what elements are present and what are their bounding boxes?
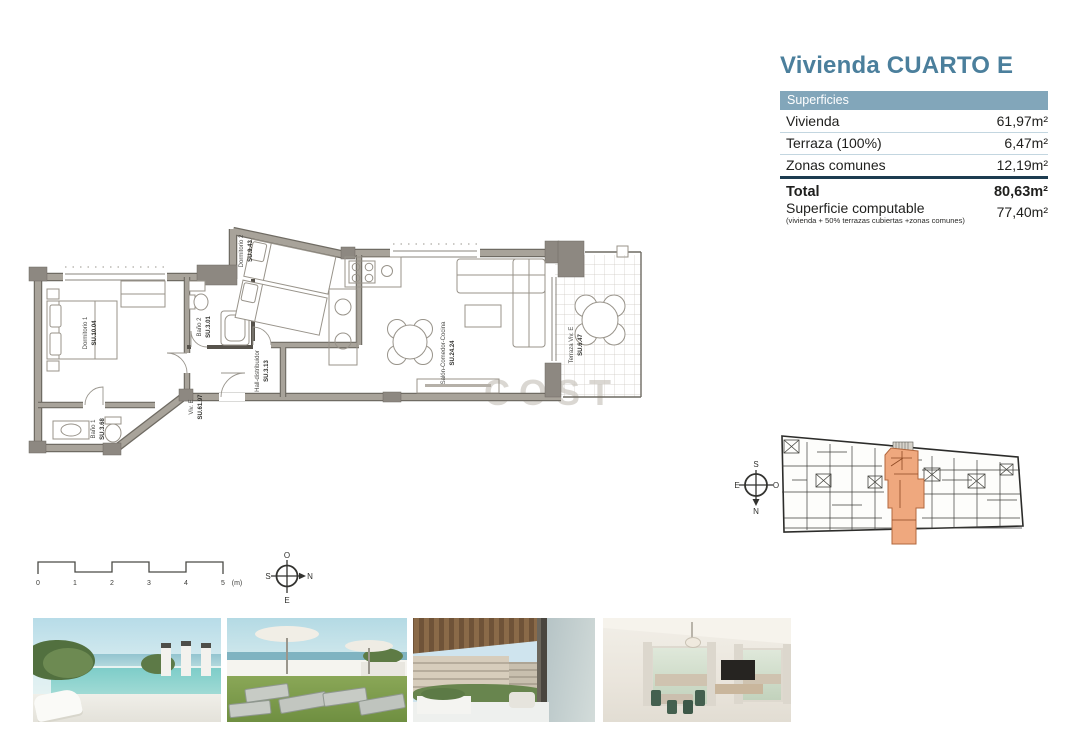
row-value: 80,63m² <box>994 184 1048 200</box>
svg-text:5: 5 <box>221 580 225 587</box>
photo-rooftop-pool <box>33 618 221 722</box>
table-divider <box>780 176 1048 179</box>
chair <box>509 692 535 708</box>
svg-text:3: 3 <box>147 580 151 587</box>
svg-text:N: N <box>307 572 313 581</box>
sideboard <box>715 684 763 694</box>
plants <box>421 688 465 700</box>
row-value: 6,47m² <box>1004 135 1048 151</box>
svg-text:N: N <box>753 507 759 516</box>
svg-text:SU.3.68: SU.3.68 <box>100 418 106 440</box>
glass-door <box>541 618 595 722</box>
svg-text:Terraza Viv. E: Terraza Viv. E <box>569 327 575 364</box>
svg-text:S: S <box>753 460 758 469</box>
photo-solarium-loungers <box>227 618 407 722</box>
window-view-buildings <box>655 674 707 686</box>
svg-text:SU.6.47: SU.6.47 <box>578 334 584 356</box>
room-label-bano-1: Baño 1 SU.3.68 <box>91 418 106 440</box>
svg-text:SU.3.01: SU.3.01 <box>206 316 212 338</box>
svg-text:E: E <box>284 596 289 605</box>
umbrella-pole <box>286 638 288 674</box>
chair <box>651 690 661 706</box>
pillar <box>181 646 191 676</box>
row-value: 12,19m² <box>997 157 1048 173</box>
table-row-vivienda: Vivienda 61,97m² <box>780 110 1048 133</box>
svg-text:Viv. E: Viv. E <box>189 399 195 414</box>
row-label: Zonas comunes <box>780 157 886 173</box>
key-plan-compass-icon: S E O N <box>733 458 779 516</box>
dining-set <box>388 320 433 365</box>
svg-text:S: S <box>265 572 270 581</box>
svg-text:(m): (m) <box>232 580 243 587</box>
svg-text:Dormitorio 1: Dormitorio 1 <box>83 316 89 349</box>
svg-text:4: 4 <box>184 580 188 587</box>
svg-text:2: 2 <box>110 580 114 587</box>
photo-living-room <box>603 618 791 722</box>
svg-text:Salón-Comedor-Cocina: Salón-Comedor-Cocina <box>441 321 447 384</box>
chair <box>695 690 705 706</box>
pendant-lamp <box>685 637 701 648</box>
svg-text:E: E <box>734 481 739 490</box>
svg-text:0: 0 <box>36 580 40 587</box>
row-label: Vivienda <box>780 113 839 129</box>
pendant-cord <box>691 622 693 638</box>
table-row-computable: Superficie computable (vivienda + 50% te… <box>780 201 1048 231</box>
floor-plan: Dormitorio 1 SU.10.04 Baño 1 SU.3.68 Bañ… <box>25 195 665 495</box>
svg-text:SU.24.24: SU.24.24 <box>450 340 456 366</box>
tv <box>721 660 755 680</box>
svg-text:SU.10.04: SU.10.04 <box>92 320 98 346</box>
bedroom1-furniture <box>47 281 165 371</box>
lamp <box>181 641 191 646</box>
svg-text:SU.9.43: SU.9.43 <box>248 240 254 262</box>
row-label: Terraza (100%) <box>780 135 882 151</box>
plan-sheet: Vivienda CUARTO E Superficies Vivienda 6… <box>0 0 1080 750</box>
bathroom1-furniture <box>53 417 121 442</box>
chair <box>667 700 677 714</box>
table-row-zonas-comunes: Zonas comunes 12,19m² <box>780 154 1048 176</box>
scale-bar: 0 1 2 3 4 5 (m) <box>30 554 245 590</box>
key-plan <box>772 430 1057 555</box>
svg-text:1: 1 <box>73 580 77 587</box>
umbrella-pole <box>368 648 370 674</box>
curtain <box>707 642 716 706</box>
row-value: 61,97m² <box>997 113 1048 129</box>
svg-text:O: O <box>773 481 779 490</box>
sofa <box>457 259 545 347</box>
photo-terrace-view <box>413 618 595 722</box>
room-label-hall: Hall-distribuidor SU.3.13 <box>255 350 270 392</box>
tv-bench <box>417 379 499 393</box>
svg-text:Dormitorio 2: Dormitorio 2 <box>239 234 245 267</box>
lamp <box>201 643 211 648</box>
table-row-terraza: Terraza (100%) 6,47m² <box>780 132 1048 155</box>
compass-icon: O S N E <box>262 548 314 606</box>
svg-text:SU.3.13: SU.3.13 <box>264 360 270 382</box>
row-value: 77,40m² <box>997 204 1048 220</box>
chair <box>683 700 693 714</box>
lamp <box>161 643 171 648</box>
room-label-bano-2: Baño 2 SU.3.01 <box>197 316 212 338</box>
svg-text:Hall-distribuidor: Hall-distribuidor <box>255 350 261 392</box>
surfaces-table-header: Superficies <box>780 91 1048 110</box>
svg-text:SU.61.97: SU.61.97 <box>198 394 204 420</box>
row-label: Total <box>780 184 820 200</box>
computable-sublabel: (vivienda + 50% terrazas cubiertas +zona… <box>786 216 965 225</box>
page-title: Vivienda CUARTO E <box>780 52 1070 80</box>
room-label-salon: Salón-Comedor-Cocina SU.24.24 <box>441 321 456 384</box>
row-label: Superficie computable (vivienda + 50% te… <box>780 201 965 225</box>
pillar <box>201 648 211 676</box>
svg-text:Baño 2: Baño 2 <box>197 317 203 337</box>
pillar <box>161 648 171 676</box>
svg-text:Baño 1: Baño 1 <box>91 419 97 439</box>
curtain <box>783 644 791 704</box>
computable-label: Superficie computable <box>786 200 925 216</box>
svg-text:O: O <box>284 551 290 560</box>
plants <box>43 648 93 678</box>
